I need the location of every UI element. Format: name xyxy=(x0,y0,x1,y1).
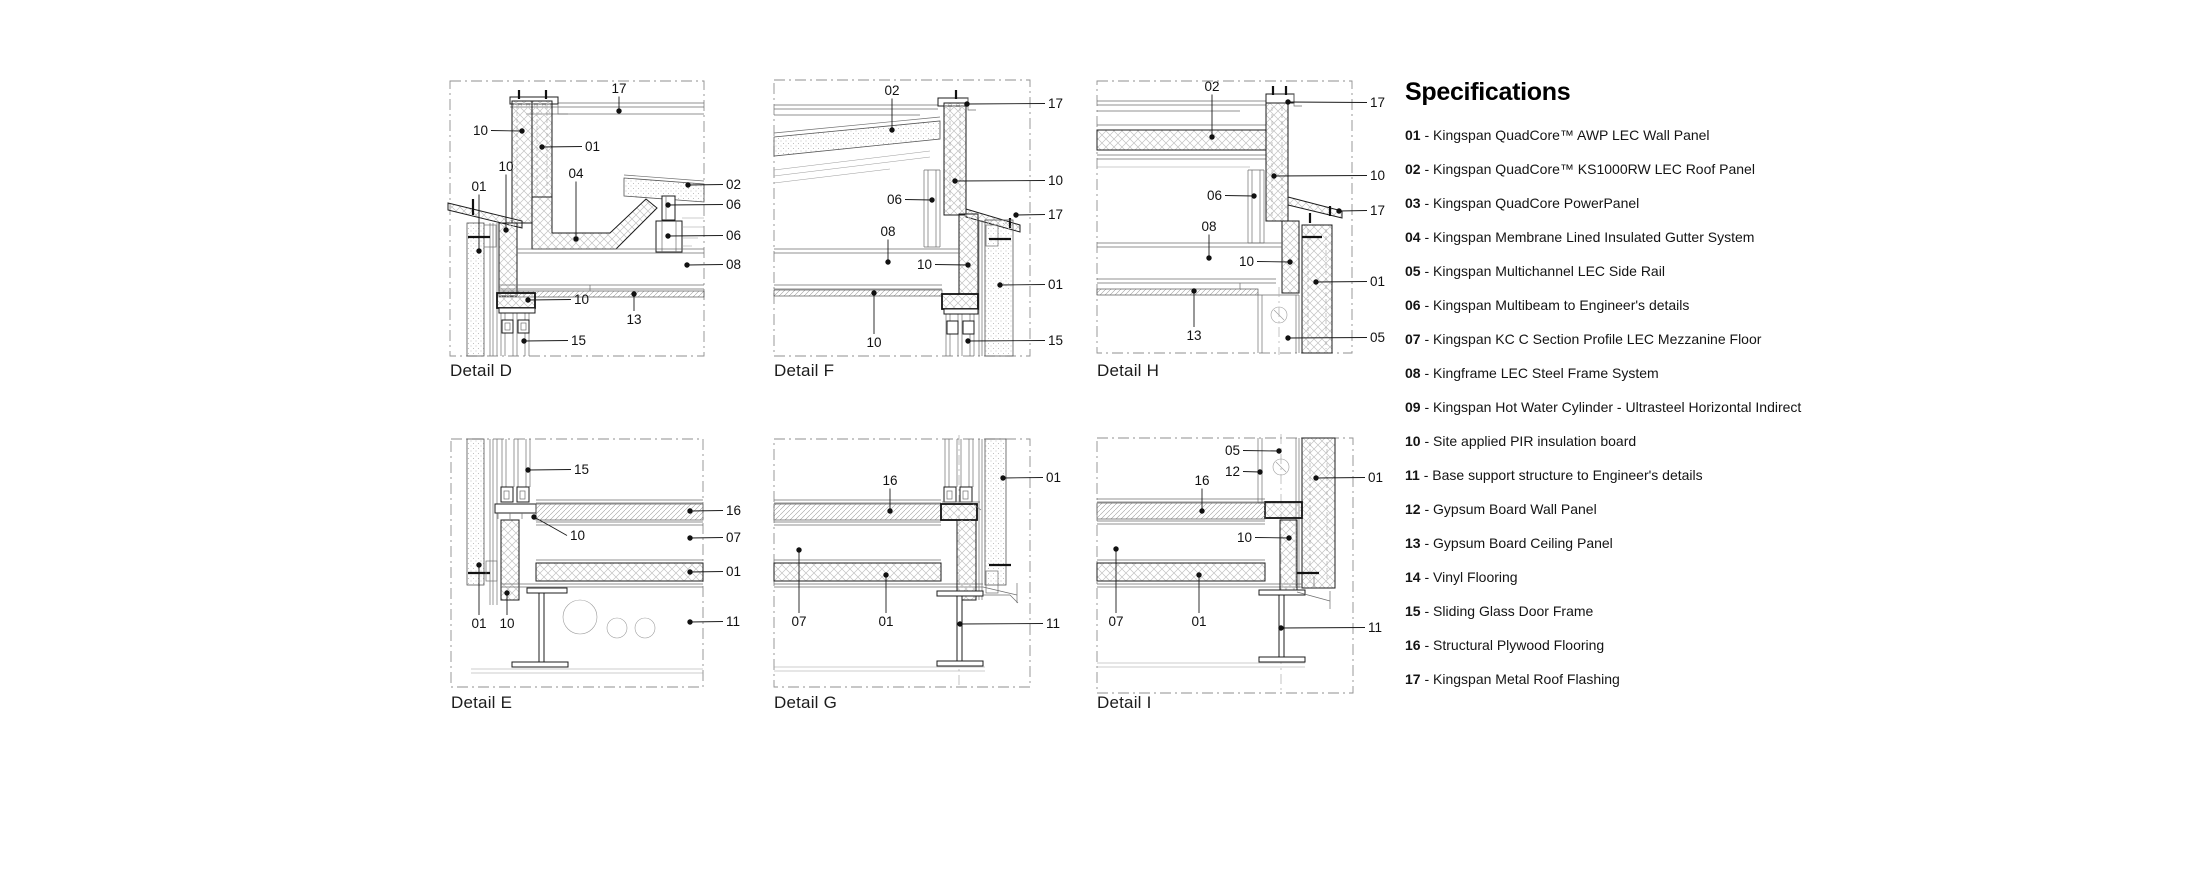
callout-leader xyxy=(688,185,723,186)
callout-label: 01 xyxy=(1370,274,1385,289)
callout-label: 15 xyxy=(574,462,589,477)
insulation-upstand xyxy=(944,103,966,215)
spec-list: 01 - Kingspan QuadCore™ AWP LEC Wall Pan… xyxy=(1405,118,1801,696)
callout-leader xyxy=(1316,478,1365,479)
callout-dot xyxy=(616,108,621,113)
callout-dot xyxy=(539,144,544,149)
callout-label: 10 xyxy=(1239,254,1254,269)
callout-dot xyxy=(1278,625,1283,630)
callout-label: 13 xyxy=(1186,328,1201,343)
wall-panel xyxy=(985,439,1006,585)
insulation-block xyxy=(941,504,977,520)
callout-label: 08 xyxy=(726,257,741,272)
callout-label: 16 xyxy=(1194,473,1209,488)
callout-dot xyxy=(964,101,969,106)
floor-panel xyxy=(536,563,703,581)
wall-panel xyxy=(1302,438,1335,588)
spec-item-text: Kingspan QuadCore™ AWP LEC Wall Panel xyxy=(1433,127,1710,143)
insulation-column xyxy=(1280,520,1297,590)
detail-title: Detail E xyxy=(451,693,512,713)
floor-panel xyxy=(1097,563,1265,581)
spec-item: 13 - Gypsum Board Ceiling Panel xyxy=(1405,526,1801,560)
spec-item-number: 12 xyxy=(1405,501,1421,517)
spec-item-number: 11 xyxy=(1405,467,1420,483)
callout-dot xyxy=(1257,469,1262,474)
callout-label: 13 xyxy=(626,312,641,327)
callout-leader xyxy=(1016,215,1045,216)
spec-item: 03 - Kingspan QuadCore PowerPanel xyxy=(1405,186,1801,220)
callout-dot xyxy=(965,338,970,343)
eaves-flashing xyxy=(1288,197,1342,218)
detail-E-drawing: 1516100701110110 xyxy=(440,425,770,725)
callout-label: 11 xyxy=(726,614,740,629)
spec-item: 15 - Sliding Glass Door Frame xyxy=(1405,594,1801,628)
detail-H-figure: 02171017060810011305 Detail H xyxy=(1090,75,1420,395)
callout-label: 15 xyxy=(571,333,586,348)
spec-item-text: Gypsum Board Wall Panel xyxy=(1433,501,1597,517)
ceiling-panel xyxy=(774,290,942,296)
spec-item-number: 10 xyxy=(1405,433,1421,449)
callout-dot xyxy=(889,127,894,132)
roof-panel xyxy=(774,121,940,156)
callout-label: 01 xyxy=(471,179,486,194)
beam-flange xyxy=(1259,657,1305,662)
spec-item-number: 06 xyxy=(1405,297,1421,313)
wall-panel xyxy=(512,101,532,223)
callout-label: 08 xyxy=(880,224,895,239)
callout-label: 02 xyxy=(1204,79,1219,94)
callout-dot xyxy=(965,262,970,267)
detail-title: Detail D xyxy=(450,361,512,381)
callout-label: 10 xyxy=(574,292,589,307)
spec-item: 09 - Kingspan Hot Water Cylinder - Ultra… xyxy=(1405,390,1801,424)
callout-label: 17 xyxy=(611,81,626,96)
callout-label: 10 xyxy=(1237,530,1252,545)
spec-item-text: Base support structure to Engineer's det… xyxy=(1432,467,1702,483)
callout-label: 01 xyxy=(585,139,600,154)
detail-G-figure: 1601070111 Detail G xyxy=(770,425,1100,725)
spec-item-number: 01 xyxy=(1405,127,1421,143)
callout-dot xyxy=(1313,279,1318,284)
spec-item-text: Kingspan QuadCore™ KS1000RW LEC Roof Pan… xyxy=(1433,161,1755,177)
detail-H-drawing: 02171017060810011305 xyxy=(1090,75,1420,395)
callout-dot xyxy=(997,282,1002,287)
spec-item-text: Gypsum Board Ceiling Panel xyxy=(1433,535,1613,551)
detail-F-drawing: 02171017060810011015 xyxy=(770,75,1100,395)
insulation-column xyxy=(501,520,519,600)
spec-item: 08 - Kingframe LEC Steel Frame System xyxy=(1405,356,1801,390)
drawing-sheet: 17100110010402060608101315 Detail D 0217… xyxy=(0,0,2200,880)
spec-item-number: 17 xyxy=(1405,671,1421,687)
wall-panel xyxy=(985,220,1013,356)
callout-label: 15 xyxy=(1048,333,1063,348)
detail-G-drawing: 1601070111 xyxy=(770,425,1100,725)
callout-dot xyxy=(1251,193,1256,198)
callout-leader xyxy=(1316,282,1367,283)
callout-leader xyxy=(1243,451,1279,452)
callout-leader xyxy=(542,147,582,148)
callout-leader xyxy=(690,622,723,623)
detail-title: Detail I xyxy=(1097,693,1152,713)
callout-dot xyxy=(1285,335,1290,340)
callout-dot xyxy=(957,621,962,626)
detail-I-drawing: 0512160110070111 xyxy=(1090,425,1420,725)
callout-label: 01 xyxy=(726,564,741,579)
callout-dot xyxy=(871,290,876,295)
callout-leader xyxy=(960,624,1043,625)
callout-label: 10 xyxy=(498,159,513,174)
door-sill xyxy=(495,504,536,513)
callout-label: 10 xyxy=(473,123,488,138)
callout-label: 07 xyxy=(1108,614,1123,629)
spec-item-number: 09 xyxy=(1405,399,1421,415)
callout-dot xyxy=(1271,173,1276,178)
gutter xyxy=(532,197,657,249)
callout-dot xyxy=(1276,448,1281,453)
ceiling-panel xyxy=(1097,289,1258,295)
callout-label: 01 xyxy=(471,616,486,631)
callout-label: 16 xyxy=(726,503,741,518)
callout-label: 07 xyxy=(726,530,741,545)
callout-dot xyxy=(1196,572,1201,577)
callout-label: 05 xyxy=(1370,330,1385,345)
beam-flange xyxy=(937,661,983,666)
detail-title: Detail F xyxy=(774,361,834,381)
callout-label: 05 xyxy=(1225,443,1240,458)
callout-dot xyxy=(665,233,670,238)
callout-dot xyxy=(687,569,692,574)
callout-label: 08 xyxy=(1201,219,1216,234)
callout-leader xyxy=(905,200,932,201)
callout-dot xyxy=(684,262,689,267)
callout-leader xyxy=(1000,285,1045,286)
callout-leader xyxy=(1255,538,1289,539)
callout-dot xyxy=(476,248,481,253)
callout-dot xyxy=(631,291,636,296)
plywood-floor xyxy=(536,504,703,520)
spec-item: 07 - Kingspan KC C Section Profile LEC M… xyxy=(1405,322,1801,356)
callout-label: 17 xyxy=(1370,203,1385,218)
callout-dot xyxy=(687,508,692,513)
callout-dot xyxy=(525,467,530,472)
spec-item-number: 16 xyxy=(1405,637,1421,653)
callout-label: 02 xyxy=(884,83,899,98)
callout-label: 01 xyxy=(1191,614,1206,629)
insulation-block xyxy=(1265,502,1302,518)
insulation-upstand xyxy=(1266,103,1288,221)
spec-item-text: Kingspan Metal Roof Flashing xyxy=(1433,671,1620,687)
callout-leader xyxy=(968,341,1045,342)
spec-item: 16 - Structural Plywood Flooring xyxy=(1405,628,1801,662)
spec-item-number: 02 xyxy=(1405,161,1421,177)
callout-dot xyxy=(1000,475,1005,480)
spec-item-number: 13 xyxy=(1405,535,1421,551)
callout-leader xyxy=(524,341,568,342)
detail-D-figure: 17100110010402060608101315 Detail D xyxy=(440,75,770,395)
callout-leader xyxy=(1003,478,1043,479)
spec-item-text: Kingspan Multibeam to Engineer's details xyxy=(1433,297,1689,313)
callout-dot xyxy=(1191,288,1196,293)
spec-item: 04 - Kingspan Membrane Lined Insulated G… xyxy=(1405,220,1801,254)
callout-label: 10 xyxy=(1370,168,1385,183)
callout-leader xyxy=(1288,338,1367,339)
callout-dot xyxy=(1336,208,1341,213)
callout-dot xyxy=(1013,212,1018,217)
spec-item-text: Kingframe LEC Steel Frame System xyxy=(1433,365,1659,381)
spec-item-number: 03 xyxy=(1405,195,1421,211)
callout-leader xyxy=(690,511,723,512)
plywood-floor xyxy=(774,504,941,520)
callout-dot xyxy=(796,547,801,552)
spec-item-number: 04 xyxy=(1405,229,1421,245)
callout-label: 07 xyxy=(791,614,806,629)
spec-item: 12 - Gypsum Board Wall Panel xyxy=(1405,492,1801,526)
spec-item-number: 14 xyxy=(1405,569,1421,585)
spec-item-text: Kingspan QuadCore PowerPanel xyxy=(1433,195,1639,211)
callout-label: 10 xyxy=(499,616,514,631)
callout-dot xyxy=(504,590,509,595)
callout-label: 10 xyxy=(1048,173,1063,188)
callout-label: 11 xyxy=(1046,616,1060,631)
callout-dot xyxy=(687,535,692,540)
spec-item: 10 - Site applied PIR insulation board xyxy=(1405,424,1801,458)
spec-item-text: Kingspan Hot Water Cylinder - Ultrasteel… xyxy=(1433,399,1801,415)
roof-panel xyxy=(1097,130,1266,150)
wall-panel xyxy=(1302,225,1332,353)
callout-dot xyxy=(531,514,536,519)
spec-item-number: 08 xyxy=(1405,365,1421,381)
callout-dot xyxy=(952,178,957,183)
callout-label: 17 xyxy=(1048,207,1063,222)
callout-leader xyxy=(1257,262,1290,263)
callout-dot xyxy=(665,202,670,207)
callout-label: 10 xyxy=(570,528,585,543)
plywood-floor xyxy=(1097,503,1265,519)
callout-dot xyxy=(887,508,892,513)
detail-I-figure: 0512160110070111 Detail I xyxy=(1090,425,1420,725)
callout-label: 01 xyxy=(1046,470,1061,485)
callout-leader xyxy=(668,205,723,206)
callout-dot xyxy=(685,182,690,187)
callout-dot xyxy=(883,572,888,577)
callout-dot xyxy=(573,236,578,241)
callout-label: 06 xyxy=(1207,188,1222,203)
specifications-panel: Specifications 01 - Kingspan QuadCore™ A… xyxy=(1405,0,1885,760)
callout-label: 02 xyxy=(726,177,741,192)
callout-label: 17 xyxy=(1048,96,1063,111)
callout-dot xyxy=(519,128,524,133)
callout-dot xyxy=(1206,255,1211,260)
callout-leader xyxy=(1274,176,1367,177)
callout-leader xyxy=(955,181,1045,182)
callout-dot xyxy=(521,338,526,343)
spec-item-number: 07 xyxy=(1405,331,1421,347)
beam-flange xyxy=(512,662,568,667)
callout-dot xyxy=(476,562,481,567)
detail-E-figure: 1516100701110110 Detail E xyxy=(440,425,770,725)
callout-dot xyxy=(1199,508,1204,513)
callout-label: 10 xyxy=(917,257,932,272)
detail-D-drawing: 17100110010402060608101315 xyxy=(440,75,770,395)
detail-title: Detail G xyxy=(774,693,837,713)
callout-label: 06 xyxy=(726,197,741,212)
spec-item-text: Vinyl Flooring xyxy=(1433,569,1518,585)
callout-label: 17 xyxy=(1370,95,1385,110)
callout-dot xyxy=(1285,99,1290,104)
spec-item: 17 - Kingspan Metal Roof Flashing xyxy=(1405,662,1801,696)
callout-leader xyxy=(1225,196,1254,197)
spec-item-text: Kingspan Multichannel LEC Side Rail xyxy=(1433,263,1665,279)
callout-label: 01 xyxy=(1368,470,1383,485)
callout-leader xyxy=(935,265,968,266)
callout-dot xyxy=(687,619,692,624)
callout-label: 11 xyxy=(1368,620,1382,635)
callout-label: 12 xyxy=(1225,464,1240,479)
callout-leader xyxy=(690,538,723,539)
spec-item-text: Kingspan KC C Section Profile LEC Mezzan… xyxy=(1433,331,1761,347)
callout-dot xyxy=(1313,475,1318,480)
spec-item: 02 - Kingspan QuadCore™ KS1000RW LEC Roo… xyxy=(1405,152,1801,186)
callout-dot xyxy=(1287,259,1292,264)
spec-item: 05 - Kingspan Multichannel LEC Side Rail xyxy=(1405,254,1801,288)
callout-leader xyxy=(967,104,1045,105)
detail-F-figure: 02171017060810011015 Detail F xyxy=(770,75,1100,395)
insulation-column xyxy=(957,520,976,600)
callout-leader xyxy=(491,131,522,132)
callout-leader xyxy=(1339,211,1367,212)
spec-item-number: 15 xyxy=(1405,603,1421,619)
callout-label: 01 xyxy=(1048,277,1063,292)
callout-label: 16 xyxy=(882,473,897,488)
spec-item-number: 05 xyxy=(1405,263,1421,279)
callout-dot xyxy=(885,259,890,264)
spec-item-text: Site applied PIR insulation board xyxy=(1433,433,1636,449)
callout-dot xyxy=(1286,535,1291,540)
callout-leader xyxy=(690,572,723,573)
specifications-title: Specifications xyxy=(1405,78,1570,107)
callout-label: 04 xyxy=(568,166,584,181)
callout-label: 10 xyxy=(866,335,881,350)
callout-label: 06 xyxy=(887,192,902,207)
callout-dot xyxy=(929,197,934,202)
callout-dot xyxy=(1209,134,1214,139)
callout-dot xyxy=(503,227,508,232)
callout-label: 01 xyxy=(878,614,893,629)
detail-title: Detail H xyxy=(1097,361,1159,381)
callout-dot xyxy=(525,297,530,302)
spec-item: 14 - Vinyl Flooring xyxy=(1405,560,1801,594)
callout-leader xyxy=(687,265,723,266)
wall-panel xyxy=(467,439,484,585)
spec-item: 01 - Kingspan QuadCore™ AWP LEC Wall Pan… xyxy=(1405,118,1801,152)
insulation-block xyxy=(942,294,978,309)
spec-item: 11 - Base support structure to Engineer'… xyxy=(1405,458,1801,492)
callout-leader xyxy=(528,470,571,471)
callout-leader xyxy=(1281,628,1365,629)
spec-item: 06 - Kingspan Multibeam to Engineer's de… xyxy=(1405,288,1801,322)
spec-item-text: Kingspan Membrane Lined Insulated Gutter… xyxy=(1433,229,1754,245)
callout-leader xyxy=(528,300,571,301)
callout-leader xyxy=(1288,102,1367,103)
callout-dot xyxy=(1113,546,1118,551)
callout-label: 06 xyxy=(726,228,741,243)
callout-leader xyxy=(668,236,723,237)
spec-item-text: Structural Plywood Flooring xyxy=(1433,637,1604,653)
door-side-panel xyxy=(467,223,484,356)
spec-item-text: Sliding Glass Door Frame xyxy=(1433,603,1593,619)
